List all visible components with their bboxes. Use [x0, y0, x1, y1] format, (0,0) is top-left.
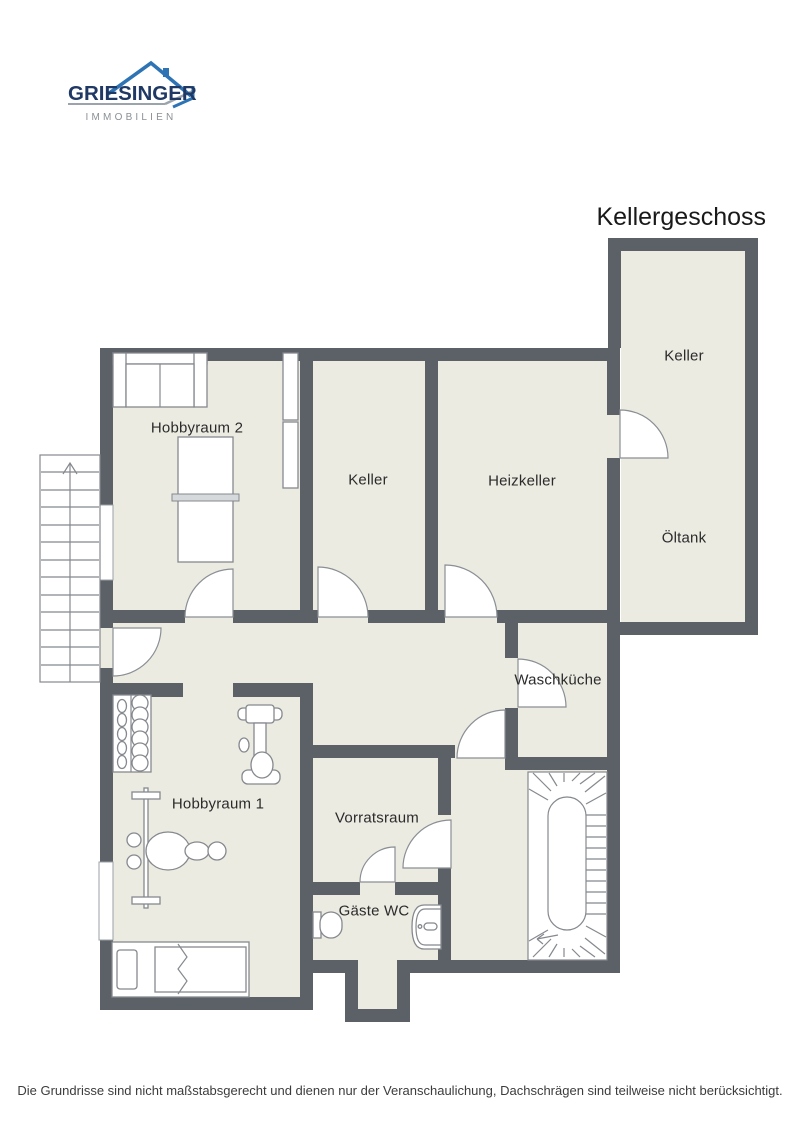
stairs-straight — [40, 455, 100, 682]
window-left-lower — [99, 862, 113, 940]
washbasin — [412, 905, 441, 949]
room-label-heizkeller: Heizkeller — [488, 473, 556, 490]
room-floor-bump-out — [358, 960, 397, 1009]
table — [172, 437, 239, 562]
room-label-keller-mitte: Keller — [348, 472, 388, 489]
room-label-gaeste-wc: Gäste WC — [339, 903, 410, 920]
stairs-winder — [528, 772, 607, 960]
room-label-hobbyraum1: Hobbyraum 1 — [172, 796, 264, 813]
room-label-oeltank: Öltank — [662, 530, 707, 547]
weight-rack — [113, 695, 151, 772]
disclaimer-text: Die Grundrisse sind nicht maßstabsgerech… — [0, 1083, 800, 1098]
room-label-keller-oben: Keller — [664, 348, 704, 365]
floorplan-page: GRIESINGER IMMOBILIEN Kellergeschoss — [0, 0, 800, 1131]
room-label-vorratsraum: Vorratsraum — [335, 810, 419, 827]
room-label-waschkueche: Waschküche — [514, 672, 601, 689]
sofa — [113, 353, 207, 407]
floor-plan — [0, 0, 800, 1131]
bed — [112, 942, 249, 997]
room-label-hobbyraum2: Hobbyraum 2 — [151, 420, 243, 437]
window-left-upper — [99, 505, 113, 580]
wall-shelf — [283, 353, 298, 488]
